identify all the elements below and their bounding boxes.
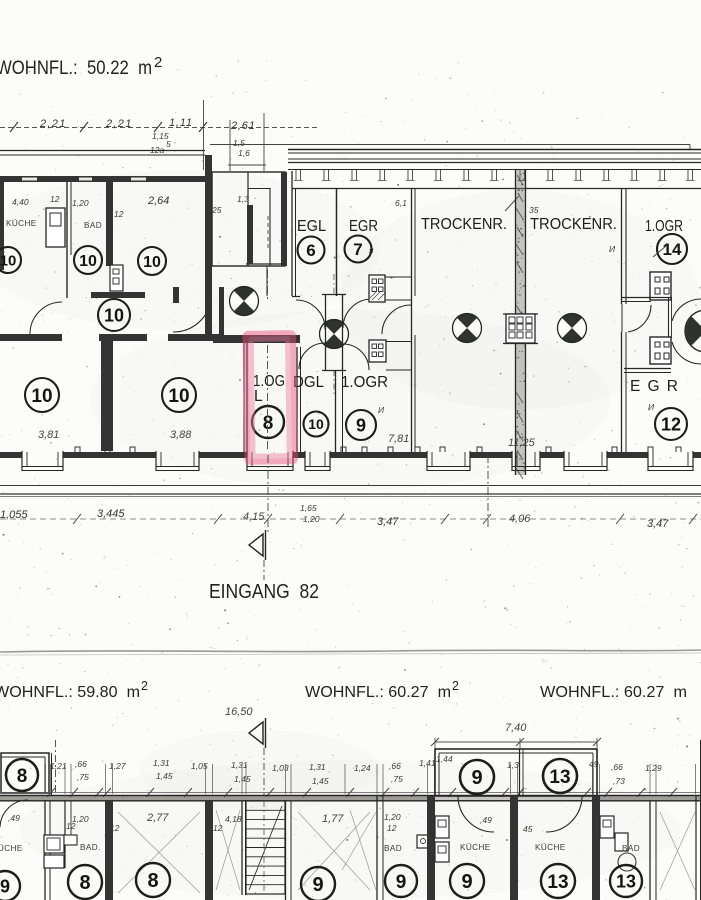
svg-text:1,20: 1,20 <box>303 514 320 524</box>
svg-text:45: 45 <box>523 824 533 834</box>
svg-text:9: 9 <box>356 415 366 435</box>
svg-text:11,25: 11,25 <box>508 437 536 449</box>
svg-text:10: 10 <box>143 254 161 271</box>
svg-text:3,81: 3,81 <box>38 429 59 441</box>
svg-text:13: 13 <box>616 871 636 891</box>
svg-text:10: 10 <box>104 305 124 325</box>
svg-text:BAD: BAD <box>84 221 102 230</box>
svg-text:,75: ,75 <box>391 774 403 784</box>
svg-text:10: 10 <box>0 252 16 269</box>
svg-text:3,47: 3,47 <box>647 518 669 530</box>
svg-text:,49: ,49 <box>8 813 20 823</box>
svg-text:,66: ,66 <box>75 759 87 769</box>
svg-text:2,21: 2,21 <box>39 118 67 130</box>
svg-text:WOHNFL.: 60.27 m: WOHNFL.: 60.27 m <box>305 684 451 701</box>
svg-text:KÜCHE: KÜCHE <box>0 843 23 853</box>
svg-text:9: 9 <box>461 871 472 893</box>
svg-text:2: 2 <box>154 54 162 71</box>
svg-text:3,445: 3,445 <box>97 508 125 520</box>
svg-text:12: 12 <box>50 194 60 204</box>
svg-text:,73: ,73 <box>613 776 625 786</box>
svg-text:2,61: 2,61 <box>230 120 256 132</box>
svg-text:1,29: 1,29 <box>645 763 662 773</box>
svg-text:1,03: 1,03 <box>272 763 289 773</box>
svg-text:6: 6 <box>306 241 315 260</box>
svg-text:1,77: 1,77 <box>322 813 344 825</box>
svg-text:7: 7 <box>353 240 362 259</box>
svg-text:10: 10 <box>308 416 324 432</box>
svg-text:KÜCHE: KÜCHE <box>535 842 566 852</box>
svg-text:1,20: 1,20 <box>72 198 89 208</box>
svg-text:10: 10 <box>168 386 189 407</box>
svg-text:1,11: 1,11 <box>169 117 193 129</box>
svg-text:1,6: 1,6 <box>238 148 250 158</box>
svg-text:KÜCHE: KÜCHE <box>6 218 37 228</box>
svg-text:1,31: 1,31 <box>309 762 326 772</box>
svg-text:1,5: 1,5 <box>233 138 245 148</box>
svg-text:,49: ,49 <box>480 815 492 825</box>
svg-text:16,50: 16,50 <box>225 706 253 718</box>
svg-text:14: 14 <box>663 240 682 259</box>
svg-text:4,18: 4,18 <box>225 814 242 824</box>
svg-text:12: 12 <box>110 823 120 833</box>
svg-text:12: 12 <box>66 821 76 831</box>
svg-text:EGL: EGL <box>297 218 326 235</box>
svg-text:2,64: 2,64 <box>147 195 169 207</box>
svg-text:1,65: 1,65 <box>300 503 317 513</box>
svg-text:2: 2 <box>452 679 459 693</box>
svg-text:WOHNFL.: 50.22 m: WOHNFL.: 50.22 m <box>0 57 152 79</box>
svg-text:8: 8 <box>79 872 90 894</box>
svg-text:10: 10 <box>31 386 52 407</box>
svg-text:BAD.: BAD. <box>80 843 101 852</box>
svg-text:10: 10 <box>79 253 97 270</box>
svg-text:1,24: 1,24 <box>354 763 371 773</box>
svg-text:8: 8 <box>263 413 274 434</box>
svg-text:4,15: 4,15 <box>243 511 265 523</box>
svg-text:8: 8 <box>17 766 28 787</box>
svg-text:TROCKENR.: TROCKENR. <box>421 216 507 233</box>
svg-text:13: 13 <box>549 767 570 788</box>
svg-text:DGL: DGL <box>293 374 324 391</box>
svg-text:4,06: 4,06 <box>509 513 531 525</box>
svg-text:,75: ,75 <box>77 772 89 782</box>
svg-text:8: 8 <box>147 870 158 892</box>
svg-text:EGR: EGR <box>349 218 378 235</box>
svg-text:5: 5 <box>166 139 171 149</box>
svg-text:12: 12 <box>661 414 681 434</box>
svg-text:13: 13 <box>547 872 568 893</box>
svg-text:35: 35 <box>529 205 539 215</box>
svg-text:1,20: 1,20 <box>384 812 401 822</box>
svg-text:TROCKENR.: TROCKENR. <box>530 216 617 233</box>
svg-text:9: 9 <box>396 872 407 893</box>
svg-text:2: 2 <box>141 679 148 693</box>
svg-text:И: И <box>609 244 616 254</box>
svg-text:4,40: 4,40 <box>12 197 29 207</box>
svg-text:1,055: 1,055 <box>0 509 28 521</box>
svg-text:И: И <box>648 402 655 412</box>
svg-text:9: 9 <box>471 767 482 789</box>
svg-text:2,77: 2,77 <box>146 812 169 824</box>
svg-text:12: 12 <box>114 209 124 219</box>
svg-text:WOHNFL.: 60.27 m: WOHNFL.: 60.27 m <box>540 684 687 701</box>
svg-text:BAD: BAD <box>384 844 402 853</box>
svg-text:1,45: 1,45 <box>156 771 173 781</box>
svg-text:7,40: 7,40 <box>505 722 527 734</box>
svg-text:9: 9 <box>312 874 323 896</box>
svg-text:7,81: 7,81 <box>388 433 409 445</box>
svg-text:1,45: 1,45 <box>234 774 251 784</box>
svg-text:1,21: 1,21 <box>50 761 67 771</box>
svg-text:1.OGR: 1.OGR <box>341 374 388 391</box>
svg-text:1,27: 1,27 <box>109 761 126 771</box>
svg-text:2,21: 2,21 <box>105 118 133 130</box>
svg-text:1,3: 1,3 <box>237 194 249 204</box>
svg-text:12: 12 <box>387 823 397 833</box>
svg-text:6,1: 6,1 <box>395 198 407 208</box>
svg-text:9: 9 <box>0 876 10 896</box>
svg-text:EGR: EGR <box>630 378 678 395</box>
svg-text:1,31: 1,31 <box>231 760 248 770</box>
svg-text:KÜCHE: KÜCHE <box>460 842 491 852</box>
svg-text:L: L <box>254 388 263 405</box>
svg-text:,66: ,66 <box>611 762 623 772</box>
svg-text:WOHNFL.: 59.80 m: WOHNFL.: 59.80 m <box>0 684 140 701</box>
svg-text:1,45: 1,45 <box>312 776 329 786</box>
svg-text:3,47: 3,47 <box>377 516 399 528</box>
svg-text:1,31: 1,31 <box>153 758 170 768</box>
svg-text:EINGANG 82: EINGANG 82 <box>209 581 319 603</box>
svg-text:1.OGR: 1.OGR <box>645 218 683 235</box>
svg-text:И: И <box>378 405 385 415</box>
svg-text:25: 25 <box>211 205 222 215</box>
svg-text:BAD: BAD <box>622 844 640 853</box>
svg-text:,66: ,66 <box>389 761 401 771</box>
svg-text:3,88: 3,88 <box>170 429 192 441</box>
